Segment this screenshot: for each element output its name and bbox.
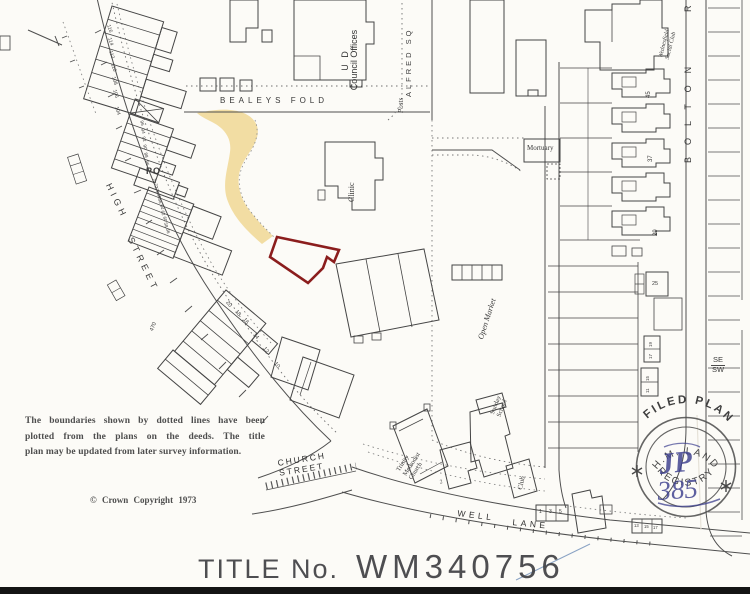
council-offices-building <box>294 0 374 80</box>
title-number: WM340756 <box>356 548 565 586</box>
house-number: 5 <box>559 509 562 515</box>
post-office-label: PO <box>146 167 161 176</box>
house-number: 17 <box>648 354 653 359</box>
subject-parcel-outline <box>270 237 339 283</box>
paper-crease <box>697 415 701 530</box>
house-number: 17 <box>653 525 658 530</box>
star-icon <box>632 465 642 477</box>
stamp-ink-number: 385 <box>655 473 698 506</box>
land-registry-title-plan: FILED PLAN H.M. LAND REGISTRY JP 385 BEA… <box>0 0 750 594</box>
house-number: 45 <box>646 91 652 98</box>
house-number: 58 <box>163 222 169 228</box>
compass-se-sw: SE SW <box>711 356 725 374</box>
house-number: 66 <box>157 198 163 204</box>
boundary-disclaimer: The boundaries shown by dotted lines hav… <box>25 414 265 461</box>
house-number: 19 <box>648 342 653 347</box>
street-label-bolton-partial: R <box>684 6 693 13</box>
house-number: 25 <box>652 281 658 287</box>
house-number: 15 <box>644 524 649 529</box>
title-number-block: TITLE No. WM340756 <box>198 548 565 586</box>
house-number: 3 <box>549 509 552 515</box>
terrace-high-street-north <box>84 6 204 127</box>
stamp-filed-plan-text: FILED PLAN <box>641 394 736 426</box>
land-registry-stamp: FILED PLAN H.M. LAND REGISTRY JP 385 <box>632 394 736 517</box>
street-label-alfred-sq: ALFRED SQ <box>405 27 413 97</box>
house-number: 11 <box>645 388 650 393</box>
tinted-area <box>197 110 273 244</box>
house-number: 56 <box>165 228 171 234</box>
house-number: 13 <box>634 523 639 528</box>
mortuary-label: Mortuary <box>527 145 553 152</box>
title-label: TITLE No. <box>198 554 339 585</box>
clinic-label: Clinic <box>348 182 356 202</box>
street-label-bealeys-fold: BEALEYS FOLD <box>220 97 328 105</box>
terrace-high-street-mid <box>111 99 203 191</box>
house-number: 15 <box>645 376 650 381</box>
house-number: 37 <box>648 155 654 162</box>
social-club-building <box>585 0 668 70</box>
market-stalls <box>452 265 502 280</box>
crown-copyright-note: © Crown Copyright 1973 <box>90 495 196 505</box>
scan-edge-bar <box>0 587 750 594</box>
house-number: 29 <box>653 229 659 236</box>
house-number: 62 <box>160 210 166 216</box>
street-label-bolton: BOLTON <box>684 55 693 163</box>
house-number: 1 <box>539 509 542 515</box>
council-offices-label: U D Council Offices <box>341 4 360 116</box>
terrace-high-street-bottom <box>158 289 288 421</box>
posts-label: Posts <box>398 98 405 113</box>
